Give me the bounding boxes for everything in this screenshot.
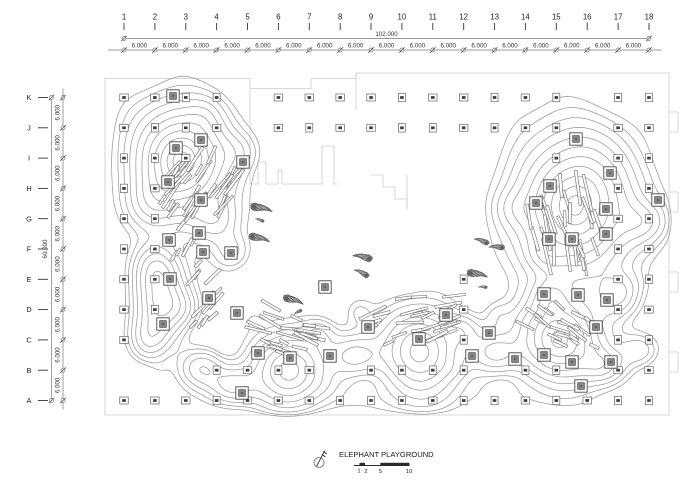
svg-text:7: 7 bbox=[307, 13, 311, 22]
svg-text:6.000: 6.000 bbox=[55, 286, 62, 302]
svg-text:K: K bbox=[27, 93, 32, 102]
svg-text:6.000: 6.000 bbox=[55, 104, 62, 120]
svg-text:14: 14 bbox=[521, 13, 530, 22]
svg-text:E: E bbox=[27, 275, 32, 284]
svg-text:6.000: 6.000 bbox=[286, 43, 302, 50]
svg-text:H: H bbox=[26, 184, 31, 193]
svg-text:F: F bbox=[27, 245, 32, 254]
svg-text:6.000: 6.000 bbox=[55, 135, 62, 151]
svg-text:B: B bbox=[27, 366, 32, 375]
svg-text:5: 5 bbox=[245, 13, 250, 22]
svg-text:6.000: 6.000 bbox=[224, 43, 240, 50]
svg-text:6.000: 6.000 bbox=[255, 43, 271, 50]
svg-text:102.000: 102.000 bbox=[375, 31, 398, 38]
svg-text:6.000: 6.000 bbox=[410, 43, 426, 50]
svg-text:6.000: 6.000 bbox=[317, 43, 333, 50]
svg-text:6.000: 6.000 bbox=[55, 316, 62, 332]
svg-text:6.000: 6.000 bbox=[471, 43, 487, 50]
svg-text:18: 18 bbox=[645, 13, 654, 22]
svg-text:6.000: 6.000 bbox=[595, 43, 611, 50]
svg-text:8: 8 bbox=[338, 13, 342, 22]
svg-text:A: A bbox=[27, 396, 32, 405]
svg-text:6.000: 6.000 bbox=[55, 377, 62, 393]
svg-text:6.000: 6.000 bbox=[348, 43, 364, 50]
svg-text:6.000: 6.000 bbox=[502, 43, 518, 50]
svg-text:9: 9 bbox=[369, 13, 373, 22]
svg-text:D: D bbox=[26, 305, 31, 314]
svg-text:6.000: 6.000 bbox=[163, 43, 179, 50]
svg-text:6.000: 6.000 bbox=[55, 225, 62, 241]
svg-text:6.000: 6.000 bbox=[55, 195, 62, 211]
svg-text:10: 10 bbox=[398, 13, 407, 22]
svg-text:60.000: 60.000 bbox=[42, 239, 49, 258]
svg-text:6.000: 6.000 bbox=[379, 43, 395, 50]
svg-text:12: 12 bbox=[459, 13, 468, 22]
svg-text:16: 16 bbox=[583, 13, 592, 22]
svg-text:6: 6 bbox=[276, 13, 280, 22]
svg-text:5: 5 bbox=[379, 469, 382, 475]
svg-text:6.000: 6.000 bbox=[55, 165, 62, 181]
svg-text:ELEPHANT PLAYGROUND: ELEPHANT PLAYGROUND bbox=[339, 450, 434, 459]
svg-text:4: 4 bbox=[214, 13, 219, 22]
svg-text:1: 1 bbox=[357, 469, 360, 475]
svg-text:6.000: 6.000 bbox=[440, 43, 456, 50]
svg-text:6.000: 6.000 bbox=[564, 43, 580, 50]
svg-text:6.000: 6.000 bbox=[626, 43, 642, 50]
svg-text:2: 2 bbox=[153, 13, 157, 22]
svg-text:6.000: 6.000 bbox=[55, 256, 62, 272]
svg-text:C: C bbox=[26, 336, 32, 345]
svg-text:13: 13 bbox=[490, 13, 499, 22]
svg-text:17: 17 bbox=[614, 13, 623, 22]
svg-text:6.000: 6.000 bbox=[55, 347, 62, 363]
svg-text:G: G bbox=[26, 214, 32, 223]
svg-text:11: 11 bbox=[429, 13, 437, 22]
svg-text:6.000: 6.000 bbox=[533, 43, 549, 50]
svg-text:6.000: 6.000 bbox=[193, 43, 209, 50]
svg-text:2: 2 bbox=[364, 469, 367, 475]
svg-text:6.000: 6.000 bbox=[132, 43, 148, 50]
svg-text:J: J bbox=[27, 123, 31, 132]
svg-text:10: 10 bbox=[406, 469, 412, 475]
svg-text:15: 15 bbox=[552, 13, 561, 22]
svg-text:1: 1 bbox=[122, 13, 126, 22]
svg-text:I: I bbox=[28, 154, 30, 163]
svg-text:3: 3 bbox=[184, 13, 188, 22]
